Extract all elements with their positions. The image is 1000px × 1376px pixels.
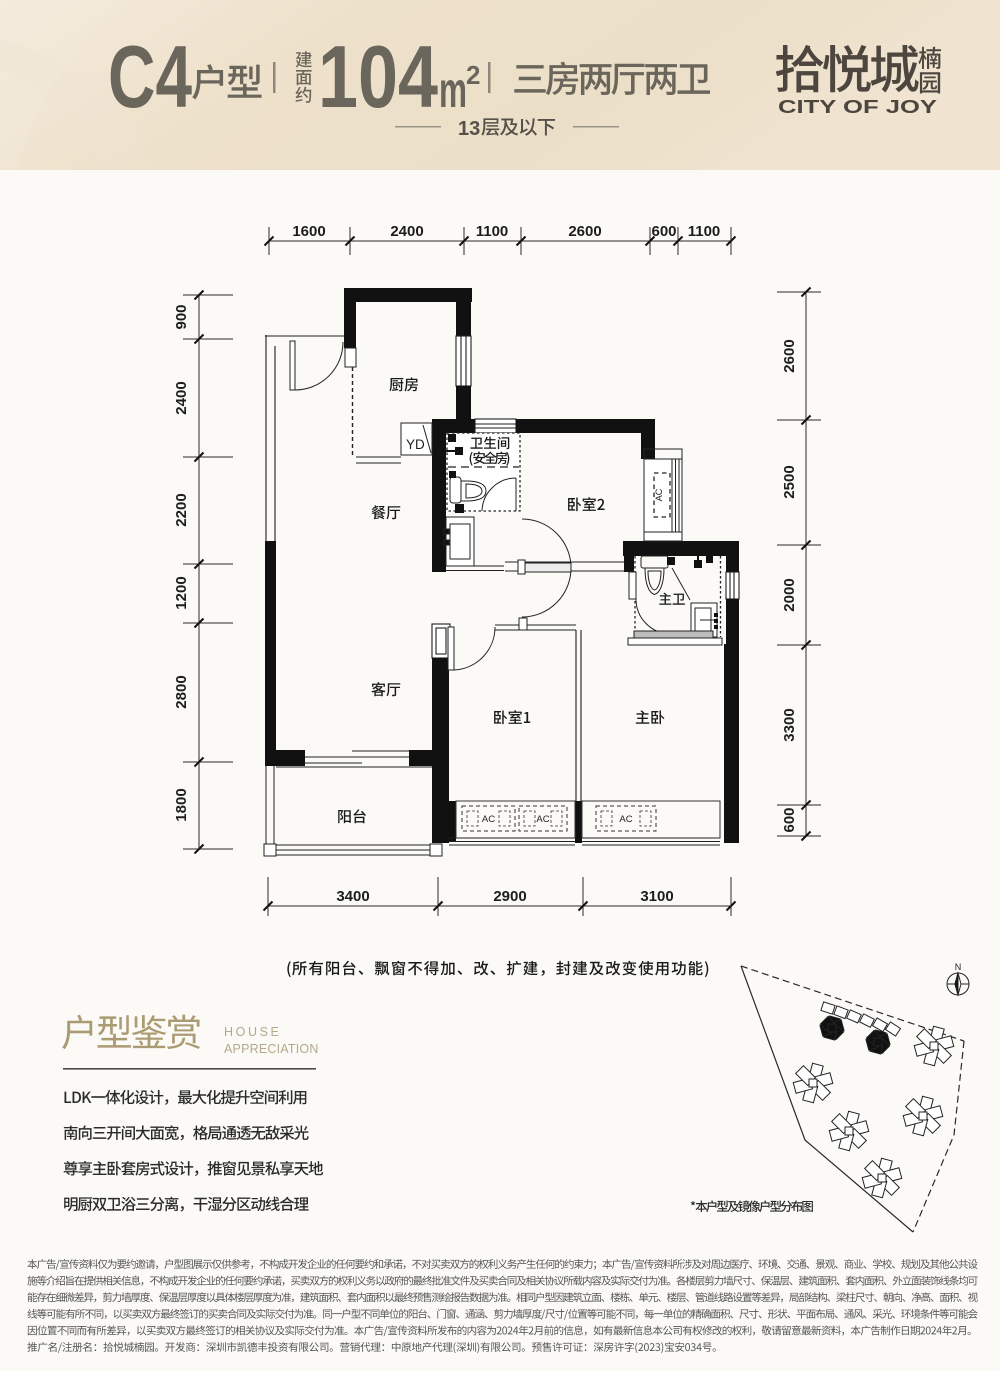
svg-text:AC: AC	[536, 814, 549, 825]
svg-text:m: m	[439, 62, 467, 118]
svg-text:1100: 1100	[688, 223, 721, 240]
svg-text:3100: 3100	[640, 888, 673, 905]
svg-text:1800: 1800	[173, 788, 190, 821]
svg-text:APPRECIATION: APPRECIATION	[224, 1042, 319, 1056]
svg-text:2400: 2400	[390, 223, 423, 240]
svg-text:2900: 2900	[493, 888, 526, 905]
svg-text:2600: 2600	[781, 339, 798, 372]
svg-text:600: 600	[781, 807, 798, 832]
svg-text:2600: 2600	[568, 223, 601, 240]
svg-text:1600: 1600	[292, 223, 325, 240]
svg-text:104: 104	[318, 27, 438, 126]
svg-text:900: 900	[173, 304, 190, 329]
svg-text:YD: YD	[406, 437, 425, 452]
svg-text:AC: AC	[654, 488, 664, 501]
svg-text:600: 600	[651, 223, 676, 240]
svg-text:2800: 2800	[173, 675, 190, 708]
svg-text:HOUSE: HOUSE	[224, 1025, 281, 1039]
svg-text:C4: C4	[108, 27, 192, 126]
svg-text:1100: 1100	[476, 223, 509, 240]
svg-text:AC: AC	[619, 814, 632, 825]
svg-text:2400: 2400	[173, 381, 190, 414]
svg-text:N: N	[955, 962, 962, 972]
svg-text:3300: 3300	[781, 708, 798, 741]
svg-text:CITY OF JOY: CITY OF JOY	[778, 97, 937, 117]
svg-text:1200: 1200	[173, 576, 190, 609]
svg-text:2: 2	[466, 60, 480, 90]
svg-text:2000: 2000	[781, 578, 798, 611]
svg-text:13: 13	[458, 118, 480, 140]
svg-text:3400: 3400	[336, 888, 369, 905]
svg-text:2500: 2500	[781, 465, 798, 498]
svg-text:2200: 2200	[173, 493, 190, 526]
svg-text:AC: AC	[482, 814, 495, 825]
